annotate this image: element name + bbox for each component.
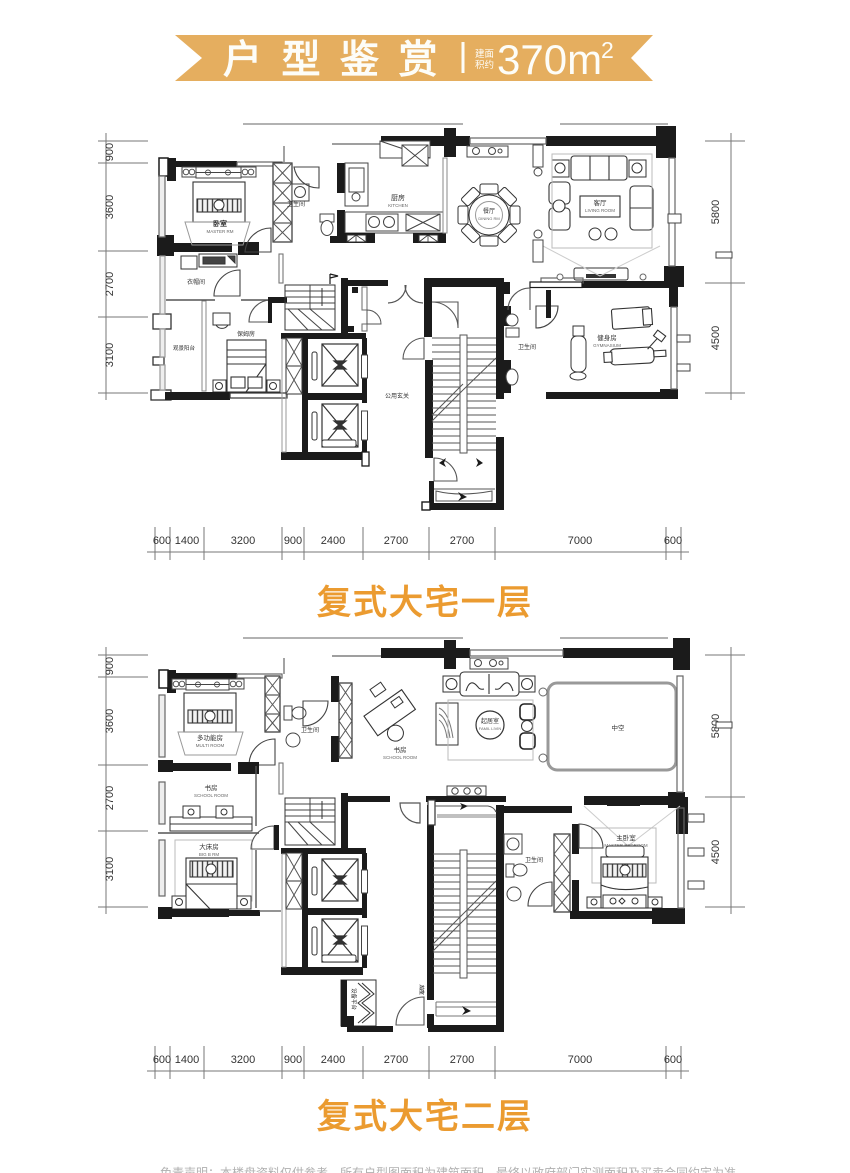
svg-text:2400: 2400 xyxy=(321,535,345,547)
svg-text:7000: 7000 xyxy=(568,535,592,547)
svg-text:健身房: 健身房 xyxy=(597,333,617,342)
svg-text:3100: 3100 xyxy=(104,343,116,367)
svg-text:MASTER RM: MASTER RM xyxy=(207,229,234,234)
svg-text:客厅: 客厅 xyxy=(594,198,608,207)
svg-text:2700: 2700 xyxy=(384,1054,408,1066)
svg-text:设备平台: 设备平台 xyxy=(350,988,358,1011)
svg-text:大床房: 大床房 xyxy=(199,842,219,851)
svg-text:观景阳台: 观景阳台 xyxy=(173,344,196,352)
svg-text:起居室: 起居室 xyxy=(481,717,499,725)
svg-text:4500: 4500 xyxy=(710,326,722,350)
svg-text:2700: 2700 xyxy=(384,535,408,547)
svg-text:书房: 书房 xyxy=(394,745,407,754)
svg-text:BIG B RM: BIG B RM xyxy=(199,852,220,857)
svg-text:卧室: 卧室 xyxy=(213,219,227,228)
svg-text:2: 2 xyxy=(601,37,614,63)
svg-text:卫生间: 卫生间 xyxy=(301,726,319,734)
svg-text:3100: 3100 xyxy=(104,857,116,881)
svg-text:4500: 4500 xyxy=(710,840,722,864)
svg-text:公用玄关: 公用玄关 xyxy=(385,392,409,400)
svg-text:FAMIL LIVIN: FAMIL LIVIN xyxy=(479,726,502,731)
svg-text:2700: 2700 xyxy=(104,786,116,810)
svg-text:370m: 370m xyxy=(497,36,602,83)
svg-text:3200: 3200 xyxy=(231,535,255,547)
svg-text:书房: 书房 xyxy=(205,783,218,792)
svg-text:衣帽间: 衣帽间 xyxy=(187,278,205,286)
svg-text:卫生间: 卫生间 xyxy=(525,856,543,864)
svg-text:DINING RM: DINING RM xyxy=(478,216,499,221)
svg-text:2700: 2700 xyxy=(104,272,116,296)
svg-text:SCHOOL ROOM: SCHOOL ROOM xyxy=(383,755,417,760)
svg-text:多功能房: 多功能房 xyxy=(197,733,223,742)
svg-text:保姆房: 保姆房 xyxy=(237,330,255,338)
svg-text:3600: 3600 xyxy=(104,709,116,733)
svg-text:2400: 2400 xyxy=(321,1054,345,1066)
svg-text:卫生间: 卫生间 xyxy=(518,343,536,351)
svg-text:餐厅: 餐厅 xyxy=(483,207,495,215)
svg-text:户型鉴赏: 户型鉴赏 xyxy=(223,39,457,82)
svg-text:中空: 中空 xyxy=(612,723,626,732)
svg-text:积约: 积约 xyxy=(475,59,494,71)
svg-text:5800: 5800 xyxy=(710,200,722,224)
svg-text:厨房: 厨房 xyxy=(391,193,405,202)
svg-text:2700: 2700 xyxy=(450,1054,474,1066)
svg-text:600: 600 xyxy=(153,1054,171,1066)
svg-text:600: 600 xyxy=(664,1054,682,1066)
svg-text:卫生间: 卫生间 xyxy=(287,200,305,208)
svg-text:建面: 建面 xyxy=(475,48,494,60)
svg-text:7000: 7000 xyxy=(568,1054,592,1066)
svg-text:2700: 2700 xyxy=(450,535,474,547)
svg-text:3200: 3200 xyxy=(231,1054,255,1066)
svg-text:1400: 1400 xyxy=(175,1054,199,1066)
svg-text:免责声明：本楼盘资料仅供参考，所有户型图面积为建筑面积，最终: 免责声明：本楼盘资料仅供参考，所有户型图面积为建筑面积，最终以政府部门实测面积及… xyxy=(160,1165,748,1173)
svg-text:900: 900 xyxy=(104,143,116,161)
svg-text:GYMNASIUM: GYMNASIUM xyxy=(593,343,621,348)
svg-text:900: 900 xyxy=(104,657,116,675)
svg-text:600: 600 xyxy=(153,535,171,547)
svg-text:900: 900 xyxy=(284,1054,302,1066)
svg-text:LIVING ROOM: LIVING ROOM xyxy=(585,208,615,213)
svg-text:SCHOOL ROOM: SCHOOL ROOM xyxy=(194,793,228,798)
svg-text:1400: 1400 xyxy=(175,535,199,547)
svg-text:主卧室: 主卧室 xyxy=(616,833,636,842)
svg-text:600: 600 xyxy=(664,535,682,547)
svg-text:入户: 入户 xyxy=(418,984,425,994)
svg-text:900: 900 xyxy=(284,535,302,547)
svg-text:复式大宅二层: 复式大宅二层 xyxy=(317,1097,533,1136)
svg-text:复式大宅一层: 复式大宅一层 xyxy=(317,583,533,622)
svg-text:3600: 3600 xyxy=(104,195,116,219)
svg-text:MULTI ROOM: MULTI ROOM xyxy=(196,743,225,748)
svg-text:KITCHEN: KITCHEN xyxy=(388,203,408,208)
